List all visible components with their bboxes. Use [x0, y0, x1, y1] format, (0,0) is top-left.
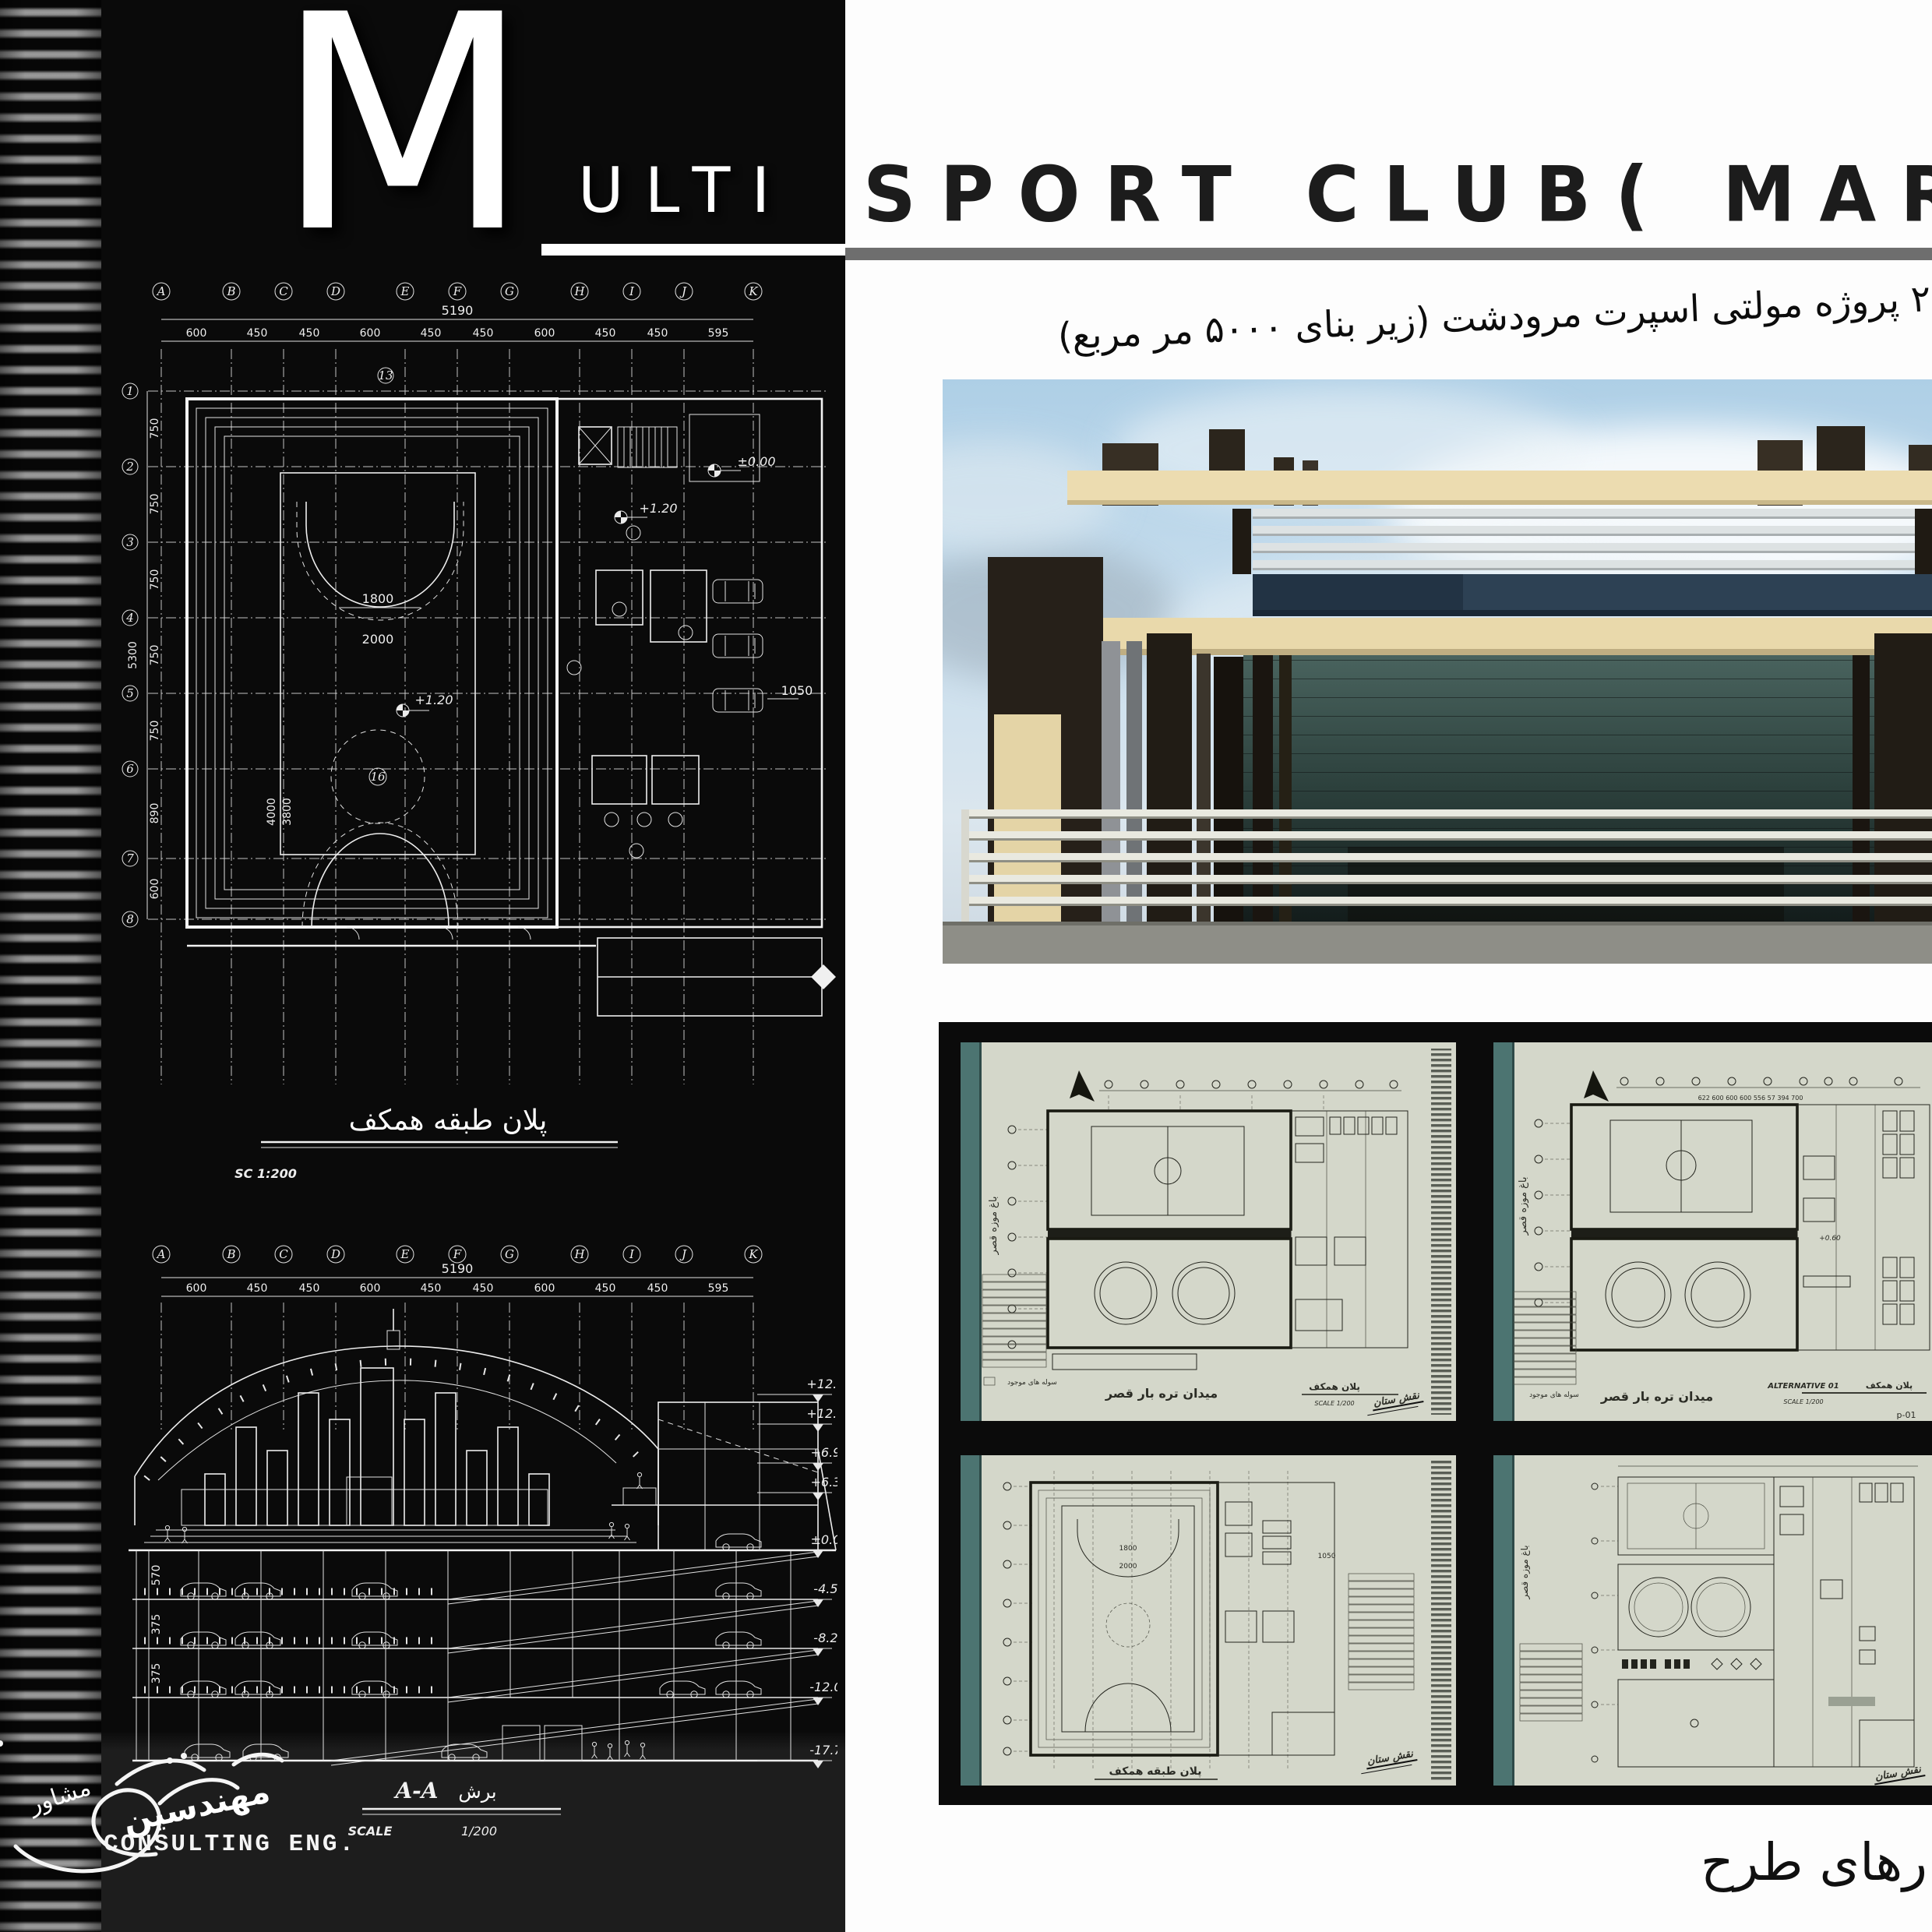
svg-text:450: 450 [473, 327, 494, 340]
presentation-board: M ULTI [0, 0, 1932, 1932]
section-title-block: A-A برش SCALE 1/200 [348, 1778, 561, 1839]
svg-text:450: 450 [247, 327, 268, 340]
svg-text:p-01: p-01 [1897, 1410, 1916, 1420]
svg-text:پلان طبقه همکف: پلان طبقه همکف [1109, 1765, 1202, 1778]
alternatives-caption: رهای طرح [1701, 1832, 1927, 1892]
svg-text:595: 595 [708, 327, 729, 340]
svg-text:میدان تره بار قصر: میدان تره بار قصر [1600, 1389, 1713, 1404]
svg-text:D: D [330, 1247, 340, 1261]
svg-text:J: J [679, 284, 687, 298]
svg-text:میدان تره بار قصر: میدان تره بار قصر [1105, 1386, 1218, 1401]
svg-text:A: A [156, 284, 166, 298]
svg-text:4: 4 [125, 611, 134, 625]
svg-text:450: 450 [299, 327, 320, 340]
svg-text:B: B [226, 284, 235, 298]
svg-text:K: K [748, 1247, 758, 1261]
svg-text:600: 600 [360, 1282, 381, 1295]
svg-text:پلان همکف: پلان همکف [1309, 1381, 1360, 1392]
plan-sports-hall: 1800 2000 16 13 +1.20 4000 3800 [187, 368, 557, 927]
plan-grid-numbers: 1 2 3 4 5 6 7 8 750 750 750 750 750 890 … [122, 383, 161, 927]
svg-text:5: 5 [126, 686, 134, 700]
svg-text:E: E [400, 1247, 410, 1261]
plan-dimensions-top: 5190 600 450 450 600 450 450 600 450 450… [161, 303, 753, 341]
svg-text:3: 3 [126, 535, 134, 549]
svg-text:C: C [279, 1247, 288, 1261]
svg-text:450: 450 [647, 327, 668, 340]
svg-text:باغ موزه قصر: باغ موزه قصر [1519, 1545, 1531, 1599]
svg-text:570: 570 [150, 1565, 163, 1586]
sheet-alternative-1: باغ موزه قصر [961, 1042, 1456, 1421]
sheet-alternative-3: باغ موزه قصر [1493, 1455, 1932, 1786]
svg-text:-17.70: -17.70 [809, 1743, 837, 1757]
svg-text:1800: 1800 [362, 591, 394, 606]
svg-text:I: I [629, 284, 635, 298]
sheet-alternative-2: 622 600 600 600 556 57 394 700 باغ موزه … [1493, 1042, 1932, 1421]
svg-text:-8.25: -8.25 [813, 1631, 837, 1645]
svg-text:1050: 1050 [781, 683, 813, 698]
svg-text:750: 750 [149, 645, 161, 666]
svg-text:2000: 2000 [362, 632, 394, 647]
svg-text:890: 890 [149, 803, 161, 824]
svg-text:600: 600 [149, 879, 161, 900]
svg-text:SCALE 1/200: SCALE 1/200 [1314, 1400, 1354, 1407]
striped-edge-band [0, 0, 101, 1932]
svg-text:سوله های موجود: سوله های موجود [1007, 1379, 1057, 1387]
plan-title-block: پلان طبقه همکف SC 1:200 [234, 1105, 618, 1181]
svg-text:450: 450 [299, 1282, 320, 1295]
svg-text:B: B [226, 1247, 235, 1261]
section-right-block [612, 1402, 836, 1550]
svg-text:600: 600 [534, 1282, 555, 1295]
svg-text:H: H [573, 1247, 585, 1261]
svg-text:باغ موزه قصر: باغ موزه قصر [988, 1196, 999, 1255]
svg-text:450: 450 [647, 1282, 668, 1295]
svg-text:ALTERNATIVE 01: ALTERNATIVE 01 [1767, 1382, 1839, 1391]
page-title: SPORT CLUB( MARVDAS [863, 151, 1932, 239]
sheet-tr-graphic: 622 600 600 600 556 57 394 700 باغ موزه … [1493, 1042, 1932, 1421]
building-render [943, 379, 1932, 964]
svg-text:باغ موزه قصر: باغ موزه قصر [1518, 1176, 1529, 1236]
svg-text:750: 750 [149, 569, 161, 591]
svg-text:I: I [629, 1247, 635, 1261]
svg-text:450: 450 [595, 1282, 616, 1295]
svg-text:2: 2 [125, 460, 134, 474]
svg-text:C: C [279, 284, 288, 298]
svg-text:750: 750 [149, 721, 161, 742]
svg-text:H: H [573, 284, 585, 298]
consulting-signature: مهندسین مشاور [0, 1729, 319, 1901]
svg-text:G: G [505, 1247, 514, 1261]
plan-grid-lines [148, 349, 826, 1084]
svg-text:سوله های موجود: سوله های موجود [1529, 1391, 1579, 1399]
sheet-ground-plan: 1800 2000 1050 [961, 1455, 1456, 1786]
svg-text:K: K [748, 284, 758, 298]
svg-text:600: 600 [534, 327, 555, 340]
svg-text:+6.90: +6.90 [810, 1445, 837, 1460]
svg-text:1/200: 1/200 [461, 1824, 497, 1839]
svg-text:450: 450 [421, 1282, 442, 1295]
svg-text:5190: 5190 [442, 303, 474, 318]
svg-text:F: F [453, 1247, 462, 1261]
logo-ulti: ULTI [578, 154, 791, 227]
svg-text:D: D [330, 284, 340, 298]
left-black-panel: M ULTI [101, 0, 845, 1932]
svg-text:600: 600 [186, 1282, 207, 1295]
svg-text:+1.20: +1.20 [639, 501, 677, 516]
render-graphic [943, 379, 1932, 964]
svg-text:SCALE 1/200: SCALE 1/200 [1783, 1398, 1823, 1405]
svg-text:13: 13 [378, 368, 393, 383]
svg-text:4000: 4000 [266, 798, 278, 826]
svg-text:SC 1:200: SC 1:200 [234, 1166, 297, 1181]
svg-text:2000: 2000 [1119, 1563, 1137, 1571]
plan-grid-letters: A B C D E F G H I J K [153, 283, 762, 300]
svg-text:595: 595 [708, 1282, 729, 1295]
svg-text:3800: 3800 [281, 798, 294, 826]
svg-text:F: F [453, 284, 462, 298]
svg-text:1800: 1800 [1119, 1545, 1137, 1553]
svg-text:600: 600 [186, 327, 207, 340]
svg-text:5300: 5300 [127, 641, 139, 669]
svg-text:-12.00: -12.00 [809, 1680, 837, 1694]
ulti-underline [541, 244, 845, 256]
svg-text:600: 600 [360, 327, 381, 340]
subtitle-farsi: ۲ پروژه مولتی اسپرت مرودشت (زیر بنای ۵۰۰… [1057, 277, 1931, 358]
svg-text:450: 450 [247, 1282, 268, 1295]
svg-text:+12.60: +12.60 [806, 1377, 837, 1391]
svg-text:6: 6 [126, 762, 134, 776]
plan-right-wing: ±0.00 +1.20 1050 [187, 399, 836, 1016]
alternatives-sheet-grid: باغ موزه قصر [939, 1022, 1932, 1805]
svg-text:750: 750 [149, 494, 161, 515]
svg-text:16: 16 [370, 770, 386, 784]
svg-text:8: 8 [126, 912, 134, 926]
svg-text:±0.00: ±0.00 [737, 454, 775, 469]
svg-text:+1.20: +1.20 [414, 693, 453, 707]
svg-text:برش: برش [458, 1781, 496, 1803]
svg-text:±0.00: ±0.00 [810, 1532, 837, 1547]
sheet-tl-graphic: باغ موزه قصر [961, 1042, 1456, 1421]
svg-text:A: A [156, 1247, 166, 1261]
svg-text:375: 375 [150, 1663, 163, 1684]
svg-text:750: 750 [149, 418, 161, 439]
svg-text:E: E [400, 284, 410, 298]
svg-text:+12.00: +12.00 [806, 1406, 837, 1421]
svg-text:G: G [505, 284, 514, 298]
svg-text:7: 7 [126, 851, 134, 866]
cad-ground-floor-plan: A B C D E F G H I J K 5190 600 450 450 6 [113, 274, 837, 1213]
svg-text:375: 375 [150, 1614, 163, 1635]
svg-text:J: J [679, 1247, 687, 1261]
svg-text:450: 450 [595, 327, 616, 340]
svg-text:پلان طبقه همکف: پلان طبقه همکف [349, 1105, 548, 1137]
sheet-bl-graphic: 1800 2000 1050 [961, 1455, 1456, 1786]
sheet-br-graphic: باغ موزه قصر [1493, 1455, 1932, 1786]
consulting-eng-label: CONSULTING ENG. [104, 1831, 356, 1858]
svg-text:+0.60: +0.60 [1819, 1235, 1841, 1243]
title-underline [845, 248, 1932, 260]
svg-text:5190: 5190 [442, 1261, 474, 1276]
svg-text:A-A: A-A [393, 1778, 438, 1803]
svg-text:450: 450 [421, 327, 442, 340]
svg-text:622 600 600 600 556: 622 600 600 600 556 57 394 700 [1698, 1095, 1803, 1102]
svg-text:450: 450 [473, 1282, 494, 1295]
logo-letter-m: M [274, 0, 531, 274]
svg-text:1050: 1050 [1318, 1553, 1336, 1560]
svg-text:پلان همکف: پلان همکف [1866, 1380, 1913, 1391]
svg-text:+6.30: +6.30 [810, 1475, 837, 1490]
svg-text:-4.50: -4.50 [813, 1581, 837, 1596]
svg-text:1: 1 [126, 384, 134, 398]
signature-word-2: مشاور [24, 1774, 94, 1820]
